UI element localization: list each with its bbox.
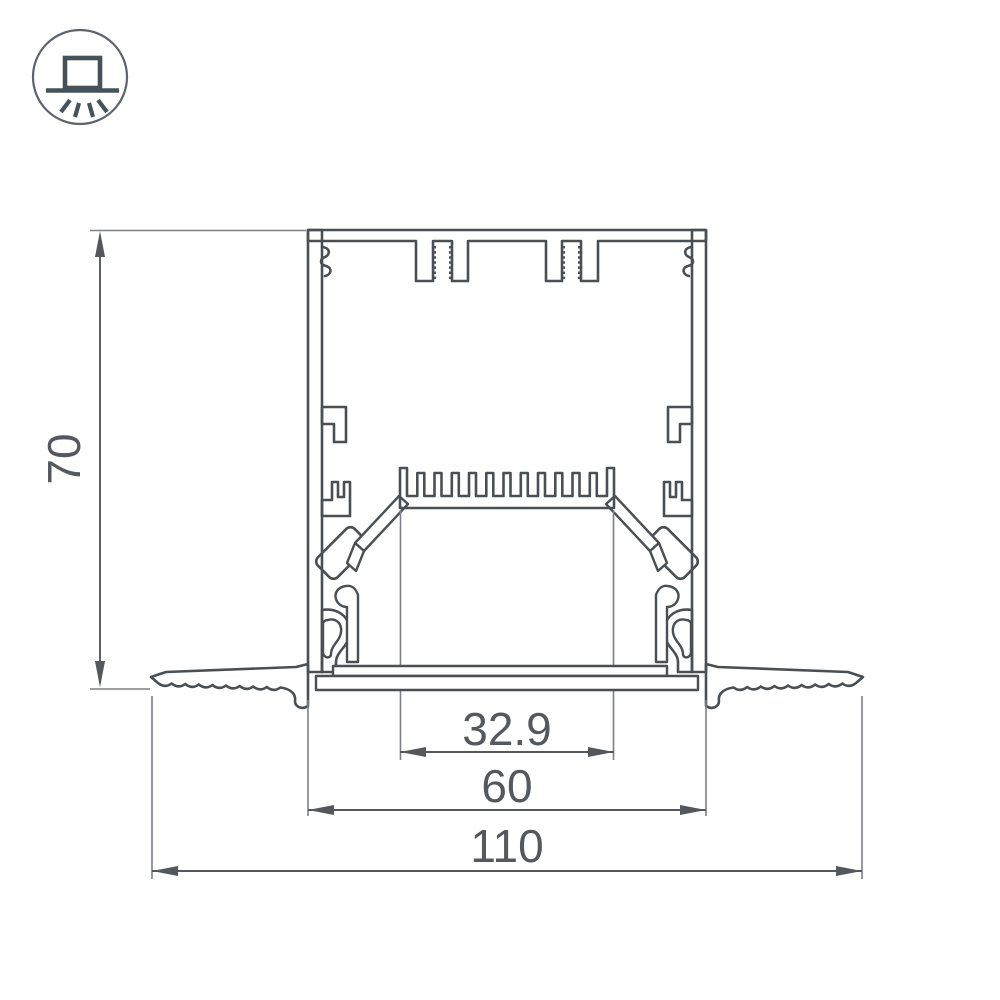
profile-drawing-canvas: 70 32.9 60 110 (0, 0, 1000, 1000)
dimension-label-body-width: 60 (481, 760, 532, 812)
dimension-label-height: 70 (38, 433, 90, 484)
top-wall (308, 230, 706, 281)
icon-badge (33, 30, 127, 124)
arrowhead-down (95, 661, 105, 688)
dimension-overall-width: 110 (152, 820, 862, 876)
heatsink-comb (400, 468, 614, 508)
arrowhead-right (680, 805, 706, 815)
arrowhead-left (152, 866, 178, 876)
arrowhead-left (400, 747, 426, 757)
dimension-body-width: 60 (308, 760, 706, 815)
arrowhead-right (588, 747, 614, 757)
arrowhead-right (836, 866, 862, 876)
dimension-label-led-shelf: 32.9 (462, 703, 552, 755)
dimension-height: 70 (38, 231, 306, 690)
arrowhead-left (308, 805, 334, 815)
badge-circle (33, 30, 127, 124)
profile-left-half (151, 230, 408, 879)
arrowhead-up (95, 231, 105, 257)
profile-right-half (606, 230, 863, 879)
dimension-led-shelf-width: 32.9 (400, 703, 614, 757)
bottom-plate (316, 676, 698, 690)
dimension-label-overall-width: 110 (470, 820, 543, 872)
tray-floor (333, 666, 667, 676)
